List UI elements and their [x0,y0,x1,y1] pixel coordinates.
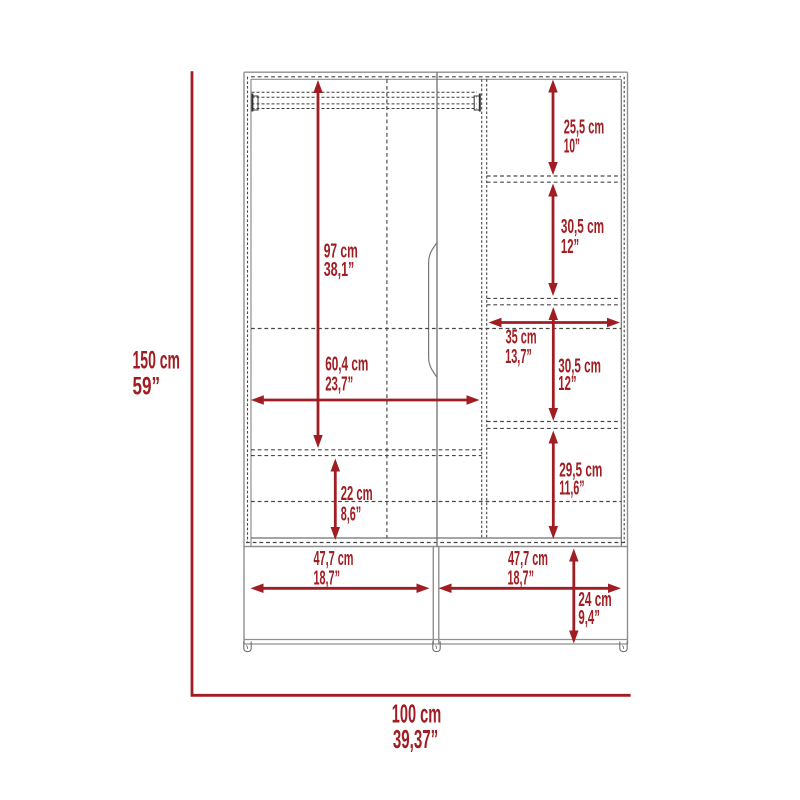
svg-text:59”: 59” [133,373,161,401]
svg-text:18,7”: 18,7” [314,568,341,590]
svg-text:38,1”: 38,1” [324,259,355,281]
svg-text:9,4”: 9,4” [578,607,600,629]
svg-text:11,6”: 11,6” [559,478,584,500]
svg-text:30,5 cm: 30,5 cm [561,216,604,238]
svg-text:10”: 10” [564,136,580,158]
svg-text:8,6”: 8,6” [341,504,362,526]
svg-text:13,7”: 13,7” [505,346,532,368]
svg-text:22 cm: 22 cm [341,483,373,505]
svg-text:12”: 12” [558,373,576,395]
svg-text:12”: 12” [561,236,579,258]
svg-text:150 cm: 150 cm [133,347,181,375]
svg-text:23,7”: 23,7” [325,374,353,396]
svg-text:60,4 cm: 60,4 cm [325,354,368,376]
svg-text:39,37”: 39,37” [393,724,438,754]
svg-text:18,7”: 18,7” [508,568,535,590]
